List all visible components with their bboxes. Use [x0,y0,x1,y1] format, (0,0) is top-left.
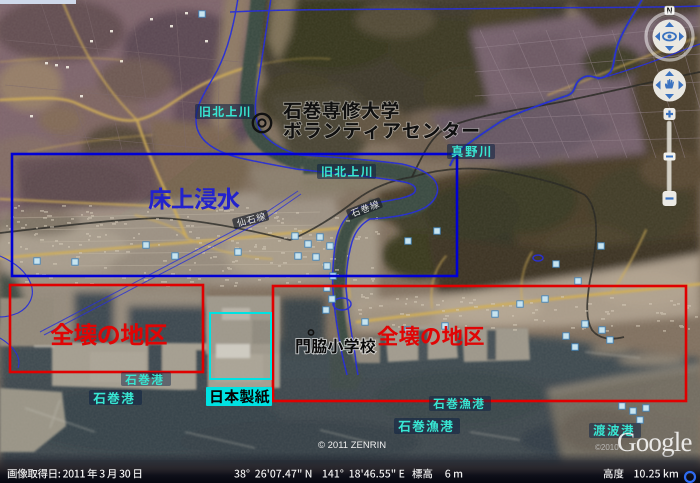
svg-text:© 2011 ZENRIN: © 2011 ZENRIN [318,440,386,451]
svg-text:©2010: ©2010 [595,443,619,452]
